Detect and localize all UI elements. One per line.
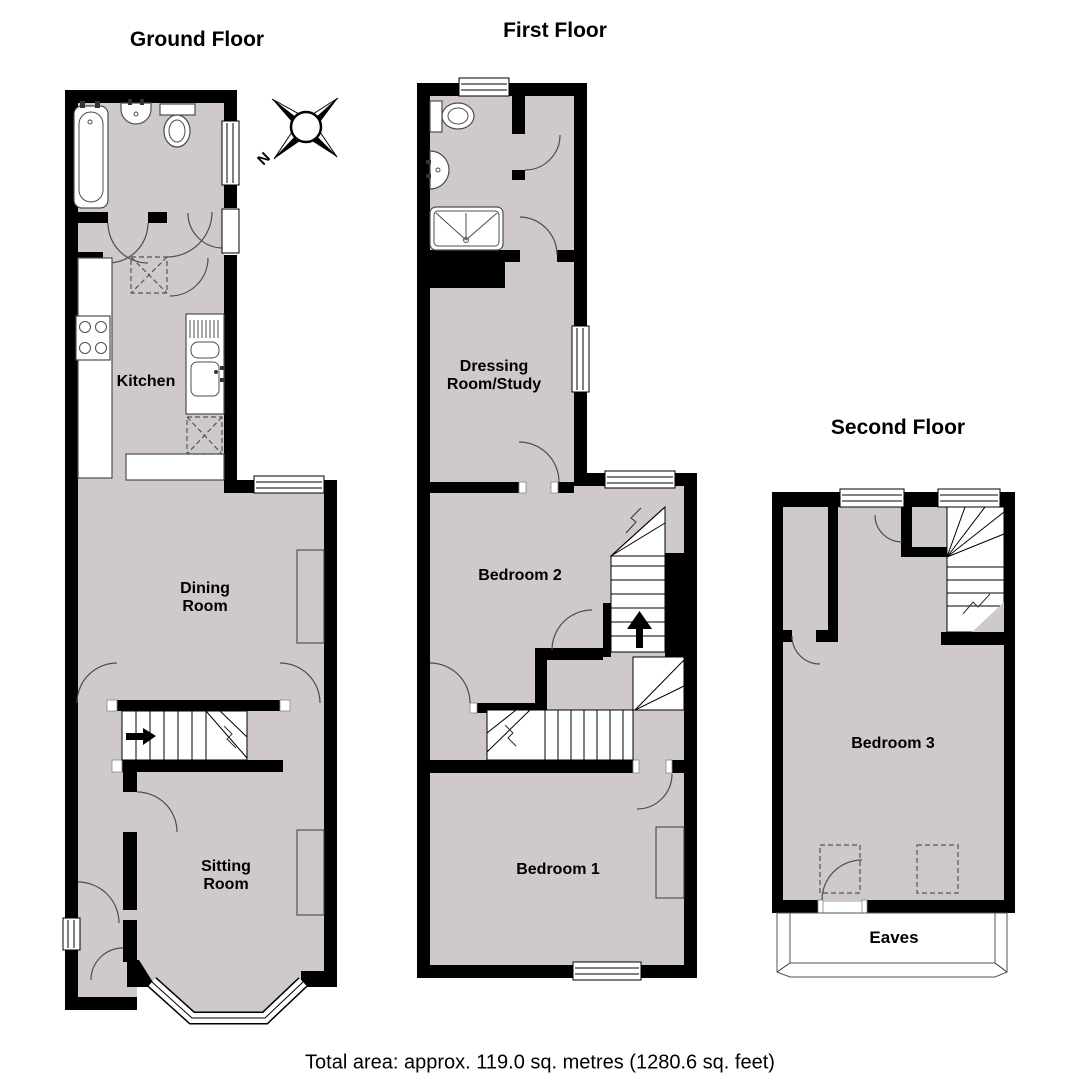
kitchen-counter-left (78, 258, 112, 478)
bedroom3-label: Bedroom 3 (851, 735, 935, 753)
second-floor-plan (772, 489, 1015, 977)
ground-floor-title: Ground Floor (130, 28, 264, 52)
sitting-chimney-breast (297, 830, 324, 915)
bedroom1-window (573, 962, 641, 980)
kitchen-sink-icon (186, 314, 225, 414)
dining-chimney-breast (297, 550, 324, 643)
bedroom2-label: Bedroom 2 (478, 567, 562, 585)
floorplan-page: Ground Floor First Floor Second Floor Ki… (0, 0, 1080, 1080)
compass-icon (272, 98, 338, 159)
sitting-room-label: Sitting Room (201, 858, 251, 894)
floorplan-drawing (0, 0, 1080, 1080)
ground-staircase (122, 711, 247, 760)
kitchen-counter-bottom (126, 454, 224, 480)
bath-icon (74, 101, 108, 208)
first-floor-plan (417, 78, 697, 980)
total-area-caption: Total area: approx. 119.0 sq. metres (12… (305, 1052, 775, 1075)
bathroom-window (222, 121, 239, 185)
dressing-room-label: Dressing Room/Study (447, 358, 541, 394)
dining-window (254, 476, 324, 493)
second-floor-staircase (947, 507, 1004, 632)
first-floor-title: First Floor (503, 19, 607, 43)
dining-room-label: Dining Room (180, 580, 230, 616)
second-floor-window-right (938, 489, 1000, 507)
second-floor-title: Second Floor (831, 416, 965, 440)
ground-floor-plan (63, 90, 337, 1018)
eaves-label: Eaves (869, 929, 918, 947)
stove-icon (76, 316, 110, 360)
dressing-room-window (572, 326, 589, 392)
shower-icon (430, 207, 503, 250)
basin-icon (121, 99, 151, 124)
bedroom1-label: Bedroom 1 (516, 861, 600, 879)
bedroom1-chimney-breast (656, 827, 684, 898)
second-floor-window-left (840, 489, 904, 507)
hall-side-window (63, 918, 80, 950)
bathroom-top-window (459, 78, 509, 96)
kitchen-label: Kitchen (117, 373, 176, 391)
landing-window (605, 471, 675, 488)
